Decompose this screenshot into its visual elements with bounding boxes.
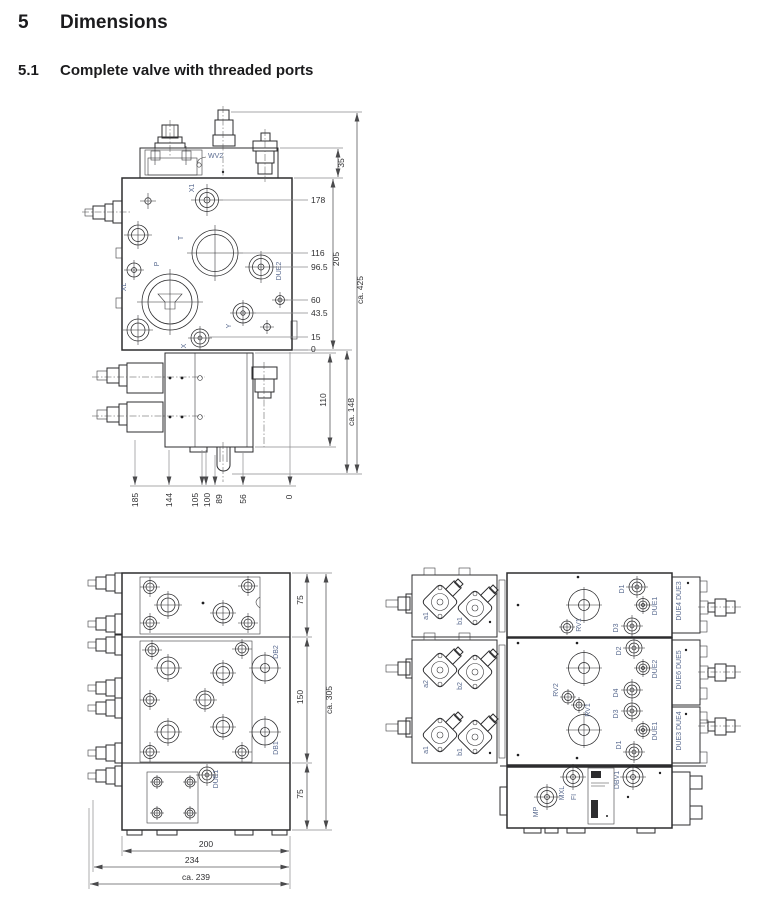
dim-200: 200 <box>199 839 213 849</box>
front-view-drawing: WV2 X1 T P XL DUE2 Y X 178 116 96.5 60 4… <box>78 100 380 530</box>
bolt-hole-left-upper <box>124 221 152 249</box>
label-mxl: MXL <box>559 786 566 801</box>
port-label-x: X <box>181 343 188 348</box>
label-a1-s2: a1 <box>423 746 430 754</box>
subsection-title: Complete valve with threaded ports <box>60 62 313 79</box>
label-d4: D4 <box>613 688 620 697</box>
section-title: Dimensions <box>60 12 168 34</box>
label-d3-s2: D3 <box>613 709 620 718</box>
top-view-drawing: DB2 DB1 DUE1 75 150 75 ca. 305 200 234 c… <box>80 545 342 895</box>
port-d4 <box>621 679 643 701</box>
port-d3-s2 <box>621 700 643 722</box>
port-60-level <box>272 292 288 308</box>
port-mp <box>534 784 560 810</box>
dim-150: 150 <box>295 690 305 704</box>
side-view-port-labels: a1 b1 RV1 D1 D3 DUE1 DUE4 DUE3 a2 b2 a1 … <box>423 581 683 817</box>
side-view-ports <box>517 576 690 810</box>
label-b2: b2 <box>457 682 464 690</box>
label-fi: FI <box>571 794 578 800</box>
port-x <box>188 326 212 350</box>
cover-detail <box>145 146 224 175</box>
port-label-due2: DUE2 <box>276 262 283 281</box>
top-view-dimensions: 75 150 75 ca. 305 200 234 ca. 239 <box>89 573 334 889</box>
dim-bottom-56: 56 <box>238 494 248 504</box>
port-label-db1: DB1 <box>273 741 280 755</box>
dim-178: 178 <box>311 195 325 205</box>
label-rv2: RV2 <box>553 683 560 697</box>
dim-75-top: 75 <box>295 595 305 605</box>
label-d1-s2: D1 <box>616 740 623 749</box>
port-label-wv2: WV2 <box>208 153 223 160</box>
label-rv1-s2: RV1 <box>585 703 592 717</box>
label-due1-s1: DUE1 <box>652 597 659 616</box>
port-d3-s1 <box>621 615 643 637</box>
side-view-left-stubs <box>386 594 412 737</box>
dim-lower-height: ca. 148 <box>346 398 356 426</box>
top-fittings <box>155 106 277 182</box>
dim-bottom-144: 144 <box>164 493 174 507</box>
solenoid-connectors <box>422 572 505 755</box>
label-mp: MP <box>533 806 540 817</box>
port-due2-s2 <box>634 659 652 677</box>
port-t <box>187 225 243 281</box>
port-due1-s1 <box>634 596 652 614</box>
section-heading: 5 Dimensions <box>18 12 168 34</box>
label-b1-s1: b1 <box>457 617 464 625</box>
port-label-due1: DUE1 <box>213 770 220 789</box>
subsection-heading: 5.1 Complete valve with threaded ports <box>18 62 313 79</box>
side-view-right-fittings <box>698 581 741 763</box>
dim-110: 110 <box>318 393 328 407</box>
port-label-p: P <box>154 261 161 266</box>
dim-bottom-185: 185 <box>130 493 140 507</box>
dim-116: 116 <box>311 248 325 258</box>
label-a2: a2 <box>423 680 430 688</box>
nameplate <box>588 768 614 824</box>
datasheet-page: { "headings": { "section_number": "5", "… <box>0 0 757 915</box>
dim-total-height: ca. 425 <box>355 276 365 304</box>
dim-60: 60 <box>311 295 321 305</box>
label-d1-s1: D1 <box>619 584 626 593</box>
port-due1-s2 <box>634 721 652 739</box>
port-p <box>137 269 203 335</box>
label-due1-s2: DUE1 <box>652 722 659 741</box>
port-xl <box>124 260 144 280</box>
port-rv2 <box>560 689 576 705</box>
dim-35: 35 <box>336 158 346 168</box>
port-hole-43 <box>260 320 274 334</box>
dim-96-5: 96.5 <box>311 262 328 272</box>
label-end-plate-top: DUE6 DUE5 <box>676 650 683 689</box>
label-rv1-s1: RV1 <box>576 618 583 632</box>
dim-bottom-0: 0 <box>284 494 294 499</box>
dim-ca-305: ca. 305 <box>324 686 334 714</box>
label-d3-s1: D3 <box>613 623 620 632</box>
label-end-plate-s1: DUE4 DUE3 <box>676 581 683 620</box>
left-plug <box>82 201 130 223</box>
dim-15: 15 <box>311 332 321 342</box>
front-view-dimensions: 178 116 96.5 60 43.5 15 0 35 205 ca. 425… <box>130 112 365 507</box>
label-b1-s2: b1 <box>457 748 464 756</box>
port-label-y: Y <box>226 323 233 328</box>
label-d2: D2 <box>616 646 623 655</box>
front-view-port-labels: WV2 X1 T P XL DUE2 Y X <box>121 153 283 348</box>
label-dbv1: DBV1 <box>614 771 621 789</box>
port-label-xl: XL <box>121 283 128 292</box>
dim-234: 234 <box>185 855 199 865</box>
port-rv1-s1 <box>559 619 575 635</box>
dim-bottom-105: 105 <box>190 493 200 507</box>
dim-43-5: 43.5 <box>311 308 328 318</box>
label-a1-s1: a1 <box>423 612 430 620</box>
lower-manifold <box>92 353 277 482</box>
port-dbv1 <box>620 764 646 790</box>
label-end-plate-bottom: DUE3 DUE4 <box>676 711 683 750</box>
dim-75-bottom: 75 <box>295 789 305 799</box>
section-number: 5 <box>18 12 60 34</box>
port-hole-top-left <box>140 193 156 209</box>
port-label-t: T <box>178 235 185 240</box>
port-y <box>230 300 256 326</box>
port-label-db2: DB2 <box>273 645 280 659</box>
label-due2: DUE2 <box>652 660 659 679</box>
dim-205: 205 <box>331 252 341 266</box>
port-d1-s1 <box>626 576 648 598</box>
subsection-number: 5.1 <box>18 62 60 79</box>
side-view-drawing: a1 b1 RV1 D1 D3 DUE1 DUE4 DUE3 a2 b2 a1 … <box>383 552 757 840</box>
top-view-left-stubs <box>88 573 122 786</box>
top-view-outline <box>122 573 290 835</box>
dim-0: 0 <box>311 344 316 354</box>
dim-bottom-100: 100 <box>202 493 212 507</box>
port-d2 <box>623 637 645 659</box>
port-due2 <box>245 251 277 283</box>
dim-bottom-89: 89 <box>214 494 224 504</box>
dim-ca-239: ca. 239 <box>182 872 210 882</box>
port-label-x1: X1 <box>189 184 196 193</box>
port-d1-s2 <box>623 741 645 763</box>
